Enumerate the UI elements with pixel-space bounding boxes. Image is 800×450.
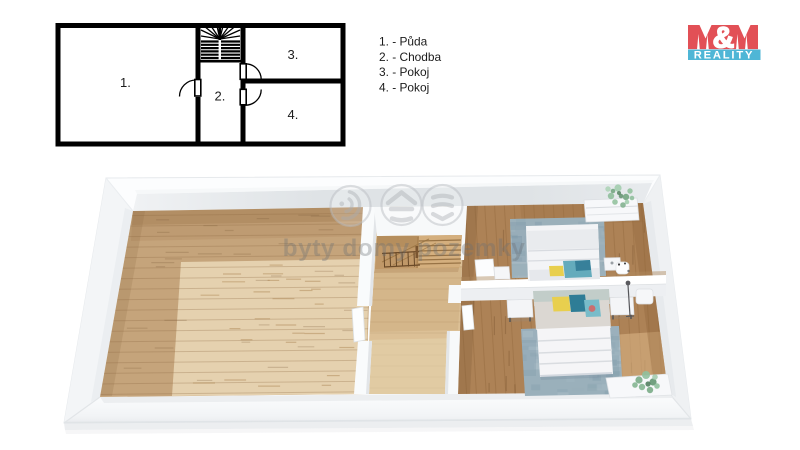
svg-text:3. - Pokoj: 3. - Pokoj: [379, 65, 429, 79]
svg-text:1.: 1.: [120, 75, 131, 90]
svg-text:4. - Pokoj: 4. - Pokoj: [379, 80, 429, 94]
svg-text:2.: 2.: [215, 89, 226, 104]
svg-text:4.: 4.: [288, 107, 299, 122]
svg-text:1. - Půda: 1. - Půda: [379, 35, 428, 49]
svg-text:2. - Chodba: 2. - Chodba: [379, 50, 442, 64]
svg-text:REALITY: REALITY: [694, 50, 754, 62]
svg-text:3.: 3.: [288, 47, 299, 62]
svg-text:byty domy pozemky: byty domy pozemky: [283, 235, 526, 262]
